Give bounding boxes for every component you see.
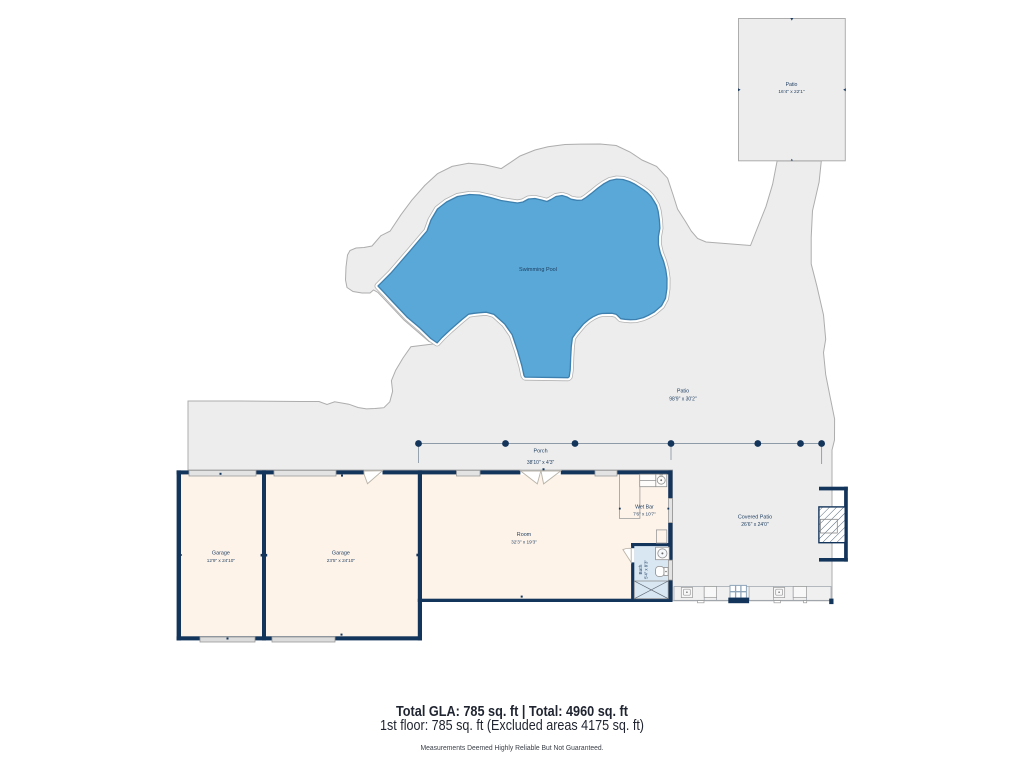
svg-text:Garage: Garage	[212, 551, 230, 557]
svg-text:12'9" x 24'10": 12'9" x 24'10"	[207, 558, 236, 563]
svg-text:26'6" x 24'0": 26'6" x 24'0"	[741, 522, 769, 528]
svg-text:Porch: Porch	[534, 449, 548, 455]
svg-text:Patio: Patio	[677, 389, 689, 395]
svg-text:7'6" x 10'7": 7'6" x 10'7"	[633, 512, 656, 517]
svg-text:Garage: Garage	[332, 551, 350, 557]
svg-text:Covered Patio: Covered Patio	[738, 515, 772, 521]
svg-text:Room: Room	[517, 532, 532, 538]
svg-text:Swimming Pool: Swimming Pool	[519, 267, 557, 273]
svg-text:32'3" x 19'3": 32'3" x 19'3"	[511, 540, 537, 545]
svg-text:98'9" x 30'2": 98'9" x 30'2"	[669, 397, 697, 403]
svg-text:5'4" x 8'3": 5'4" x 8'3"	[644, 560, 649, 579]
svg-text:16'4" x 22'1": 16'4" x 22'1"	[778, 89, 805, 95]
svg-text:Wet Bar: Wet Bar	[635, 505, 654, 511]
svg-text:Patio: Patio	[786, 82, 798, 88]
svg-text:23'5" x 24'10": 23'5" x 24'10"	[327, 558, 356, 563]
svg-text:Measurements Deemed Highly Rel: Measurements Deemed Highly Reliable But …	[421, 745, 604, 752]
svg-text:1st floor: 785 sq. ft (Exclude: 1st floor: 785 sq. ft (Excluded areas 41…	[380, 718, 644, 734]
svg-text:38'10" x 4'3": 38'10" x 4'3"	[527, 460, 555, 466]
